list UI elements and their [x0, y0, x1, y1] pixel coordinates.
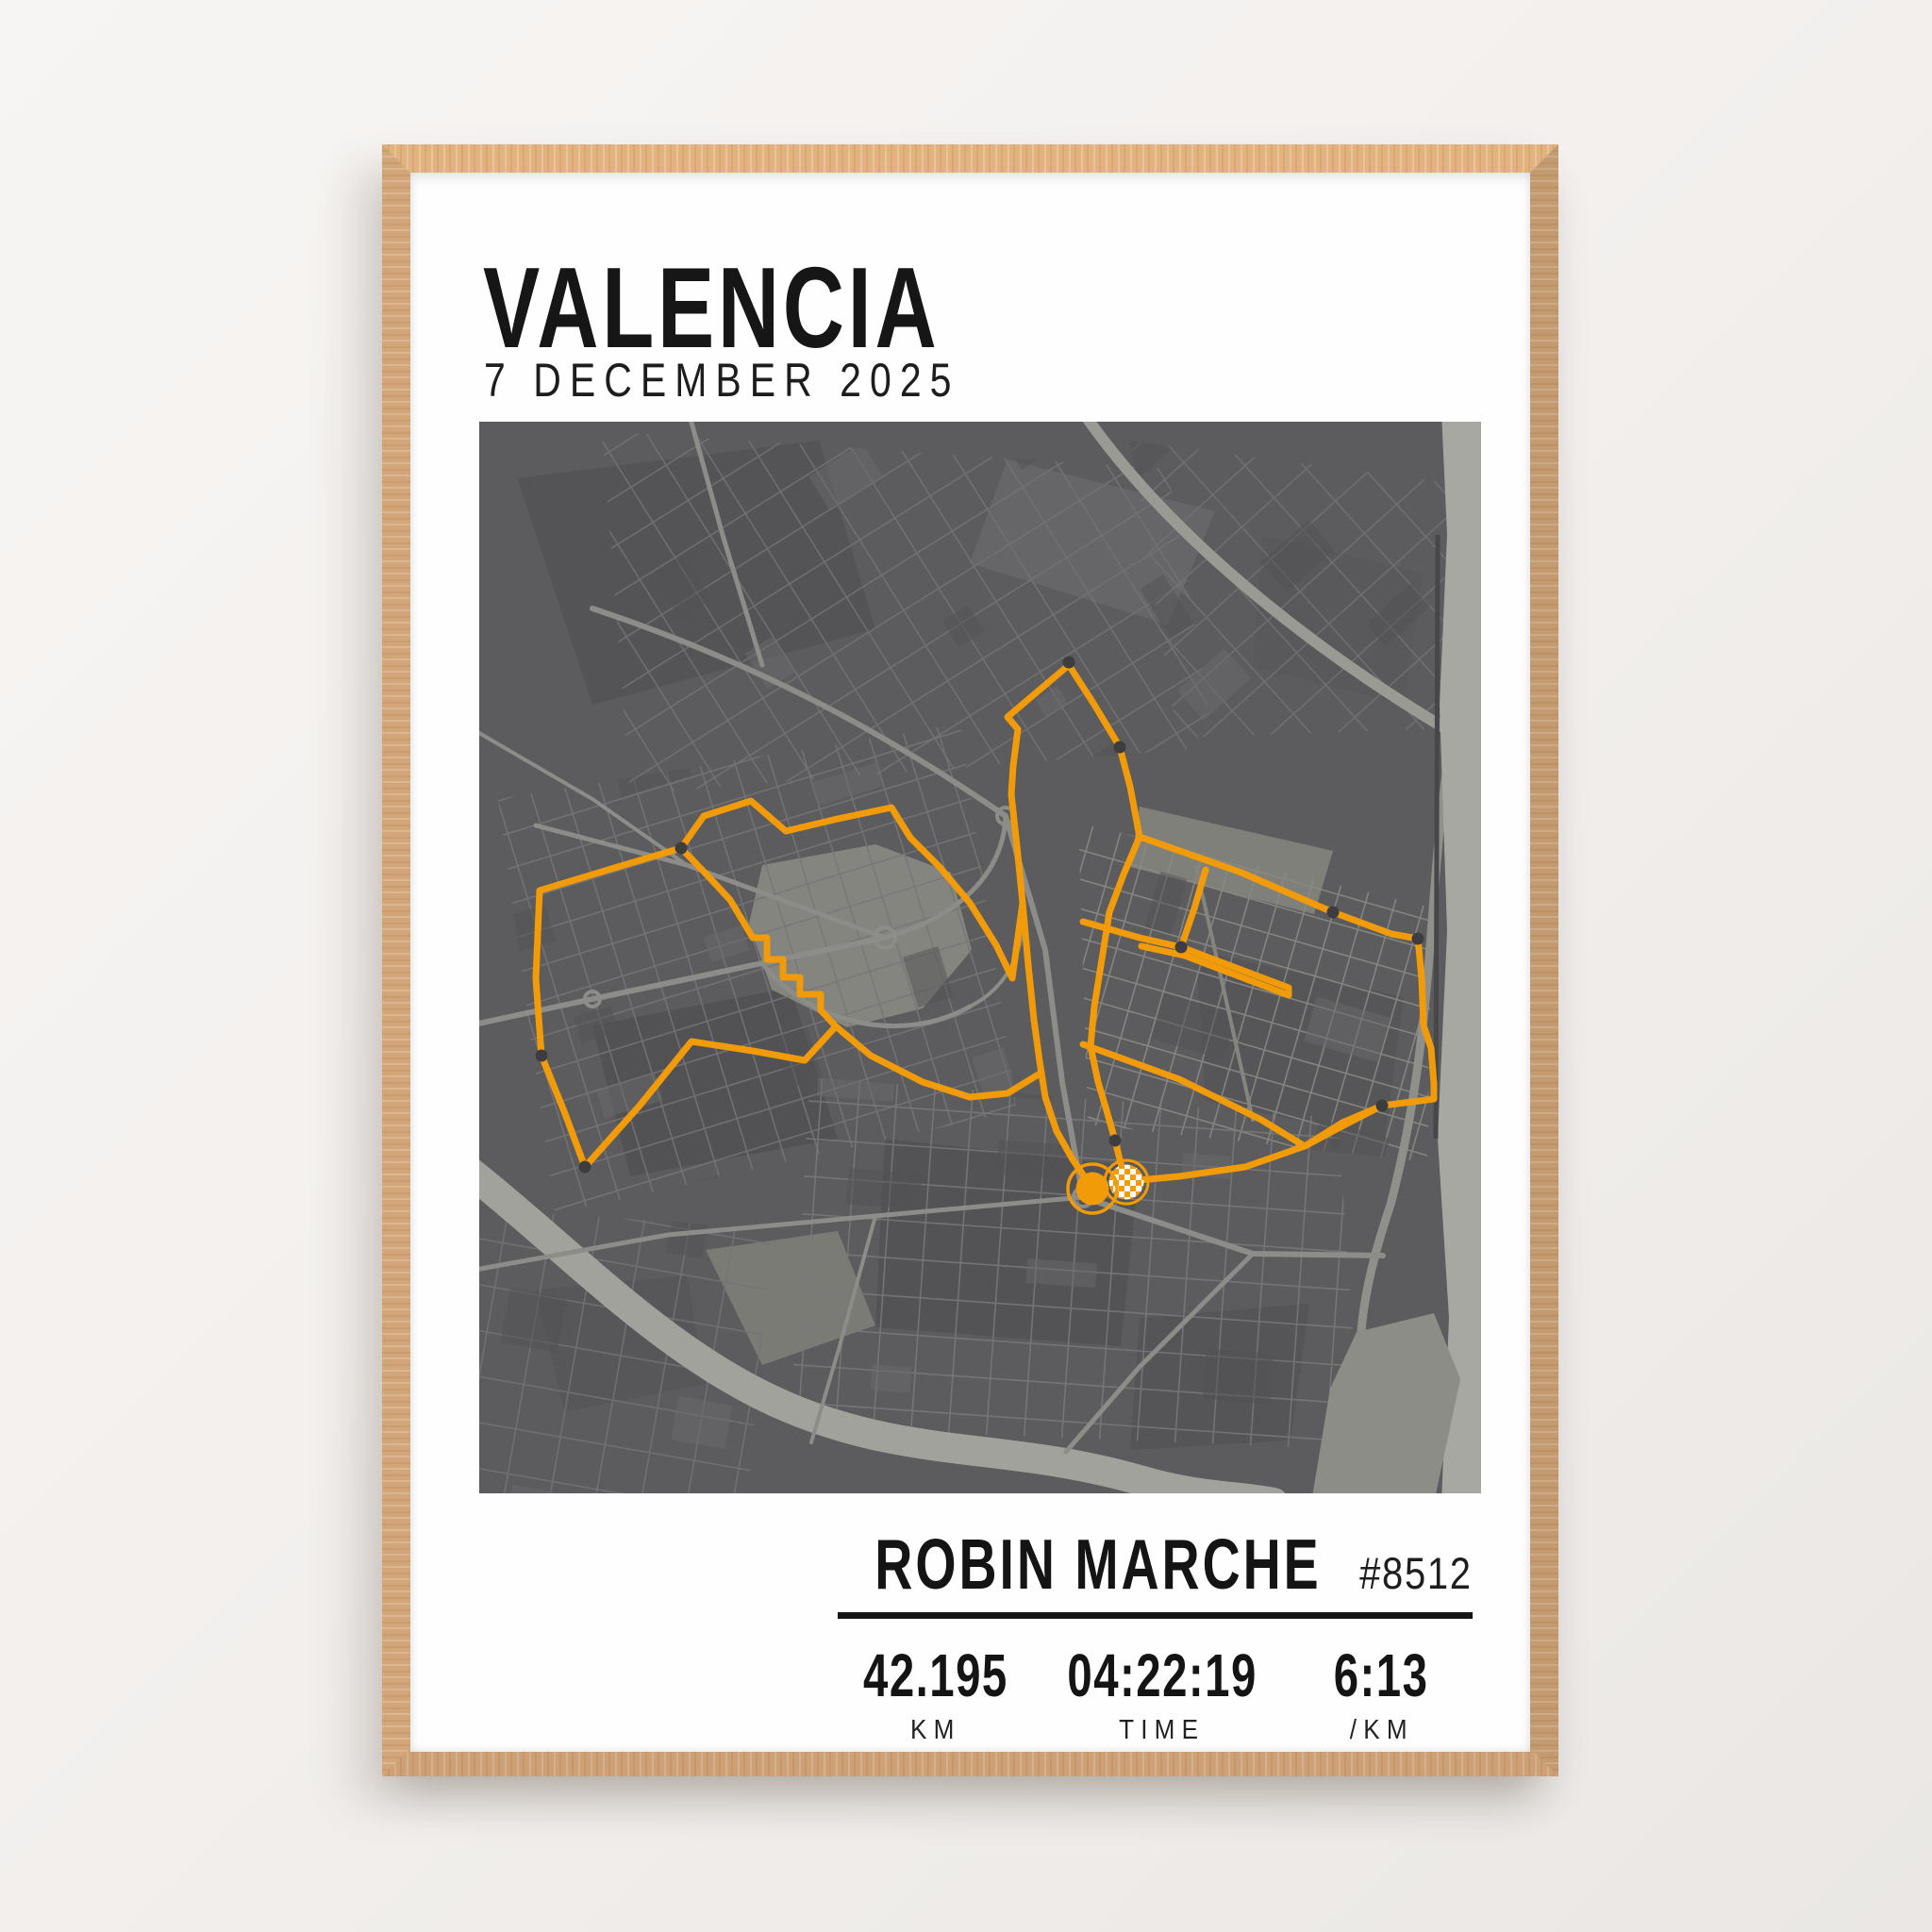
- poster-date: 7 DECEMBER 2025: [484, 357, 1064, 404]
- poster-title-text: VALENCIA: [483, 250, 940, 365]
- map-svg: [479, 422, 1481, 1493]
- stat-pace-value: 6:13: [1291, 1645, 1473, 1706]
- marathon-poster: VALENCIA 7 DECEMBER 2025: [410, 173, 1530, 1752]
- stat-pace-label: /KM: [1291, 1717, 1473, 1744]
- frame-left-bar: [382, 144, 410, 1776]
- runner-block: ROBIN MARCHE #8512 42.195 KM 04:22:19 TI…: [838, 1529, 1473, 1744]
- finish-marker: [1105, 1160, 1148, 1204]
- stat-distance: 42.195 KM: [838, 1645, 1034, 1744]
- stat-time-value: 04:22:19: [1034, 1645, 1291, 1706]
- picture-frame: VALENCIA 7 DECEMBER 2025: [382, 144, 1558, 1776]
- frame-bottom-bar: [382, 1748, 1558, 1776]
- stat-time: 04:22:19 TIME: [1034, 1645, 1291, 1744]
- runner-name: ROBIN MARCHE: [718, 1529, 1322, 1600]
- stat-distance-label: KM: [838, 1717, 1034, 1744]
- stat-time-label: TIME: [1034, 1717, 1291, 1744]
- route-map: [479, 422, 1481, 1493]
- stat-distance-value: 42.195: [838, 1645, 1034, 1706]
- wall: VALENCIA 7 DECEMBER 2025: [0, 0, 1932, 1932]
- poster-date-text: 7 DECEMBER 2025: [484, 357, 959, 404]
- frame-right-bar: [1530, 144, 1558, 1776]
- stats-row: 42.195 KM 04:22:19 TIME 6:13 /KM: [838, 1645, 1473, 1744]
- bib-number: #8512: [1340, 1551, 1473, 1595]
- stat-pace: 6:13 /KM: [1291, 1645, 1473, 1744]
- frame-top-bar: [382, 144, 1558, 173]
- poster-title: VALENCIA: [483, 250, 1101, 365]
- divider-line: [838, 1612, 1473, 1619]
